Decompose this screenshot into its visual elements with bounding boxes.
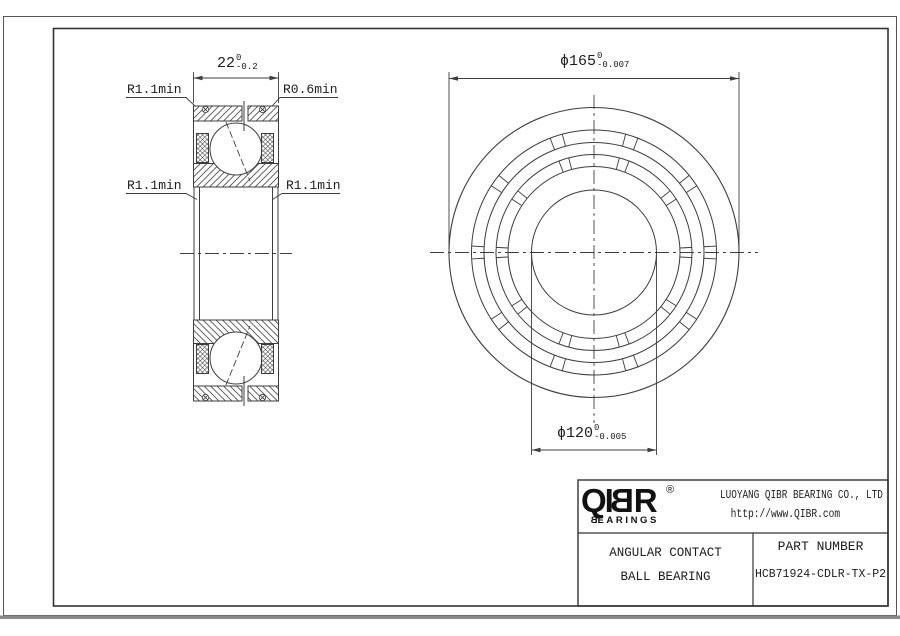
company-website: http://www.QIBR.com [690,508,880,521]
radius-label-bottom-left: R1.1min [127,179,182,192]
dimension-tolerance: 0 -0.2 [236,54,258,72]
logo-subtitle: BEARINGS [588,516,659,526]
radius-label-top-right: R0.6min [283,83,338,96]
dimension-value: ϕ120 [557,426,593,441]
outer-diameter-dimension: ϕ165 0 -0.007 [560,54,629,70]
drawing-sheet: 22 0 -0.2 ϕ165 0 -0.007 ϕ120 0 -0.005 R1… [0,0,900,636]
company-logo: QIBR [581,486,656,516]
cross-section-view [126,72,340,406]
dimension-value: ϕ165 [560,54,596,69]
width-dimension-lines [194,72,279,103]
dimension-tolerance: 0 -0.007 [597,52,629,70]
front-view [430,72,758,455]
logo-sub-mirrored-b: B [588,516,597,526]
bore-diameter-dimension: ϕ120 0 -0.005 [557,426,626,442]
product-type-line2: BALL BEARING [578,571,753,584]
radius-label-bottom-right: R1.1min [286,179,341,192]
logo-registered-icon: ® [666,485,674,496]
part-number-label: PART NUMBER [753,540,888,554]
logo-mirrored-b: B [612,486,634,516]
dimension-tolerance: 0 -0.005 [594,424,626,442]
company-name: LUOYANG QIBR BEARING CO., LTD [697,489,888,502]
dimension-value: 22 [217,56,235,71]
radius-label-top-left: R1.1min [127,83,182,96]
width-dimension: 22 0 -0.2 [217,56,258,72]
sheet-borders [0,17,900,620]
product-type-line1: ANGULAR CONTACT [578,547,753,560]
part-number-value: HCB71924-CDLR-TX-P2 [753,568,888,582]
front-view-centerlines [430,95,758,423]
